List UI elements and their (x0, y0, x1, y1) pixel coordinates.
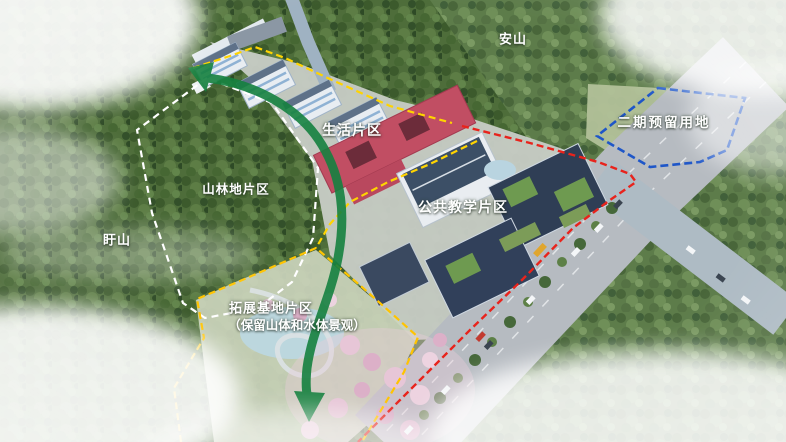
aerial-scene (0, 0, 786, 442)
label-teaching-zone: 公共教学片区 (418, 197, 508, 217)
haze-overlay (0, 0, 786, 442)
masterplan-rendering: 安山 二期预留用地 生活片区 山林地片区 盱山 公共教学片区 拓展基地片区 （保… (0, 0, 786, 442)
label-anshan-mountain: 安山 (499, 29, 527, 48)
label-forest-zone: 山林地片区 (202, 179, 270, 198)
label-extension-note: （保留山体和水体景观） (228, 315, 366, 334)
label-phase2-reserved-land: 二期预留用地 (618, 111, 711, 131)
label-xushan-mountain: 盱山 (103, 230, 131, 249)
label-living-zone: 生活片区 (322, 120, 382, 140)
